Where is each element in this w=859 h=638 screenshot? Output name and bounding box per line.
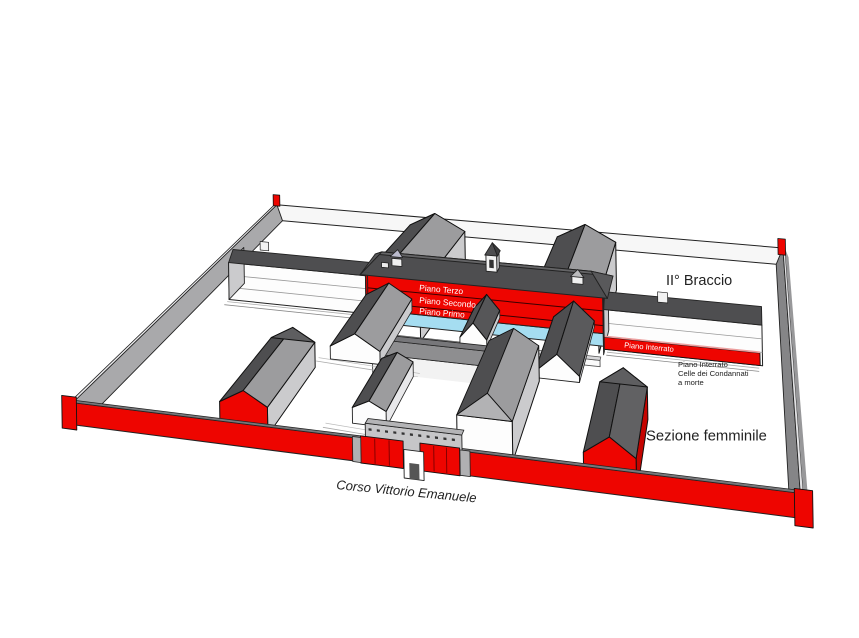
svg-text:II° Braccio: II° Braccio: [666, 273, 732, 289]
svg-text:a morte: a morte: [678, 378, 704, 387]
svg-text:Celle dei Condannati: Celle dei Condannati: [678, 369, 749, 378]
svg-text:Sezione femminile: Sezione femminile: [646, 429, 767, 445]
svg-text:Piano Interrato: Piano Interrato: [678, 360, 728, 369]
